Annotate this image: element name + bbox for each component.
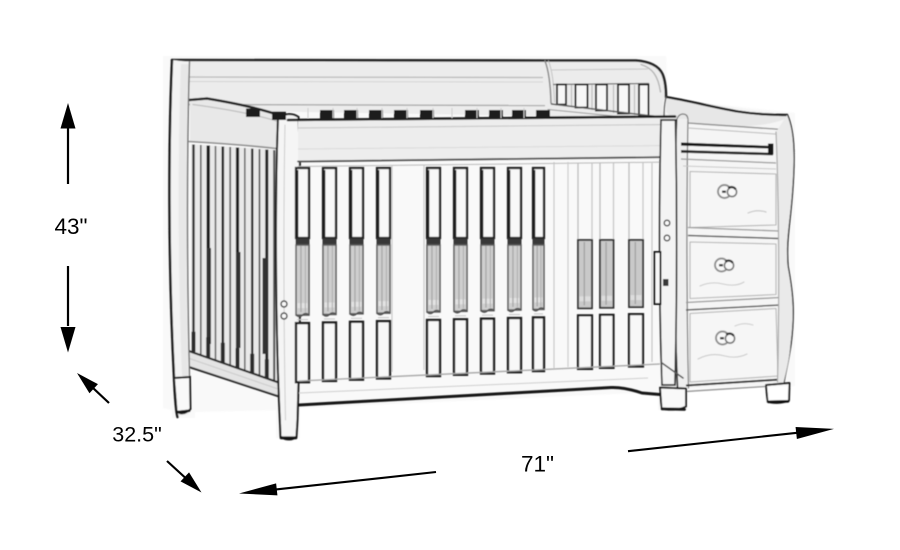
svg-text:32.5": 32.5" — [112, 423, 161, 447]
svg-text:43": 43" — [54, 214, 87, 239]
svg-text:71": 71" — [521, 452, 554, 477]
